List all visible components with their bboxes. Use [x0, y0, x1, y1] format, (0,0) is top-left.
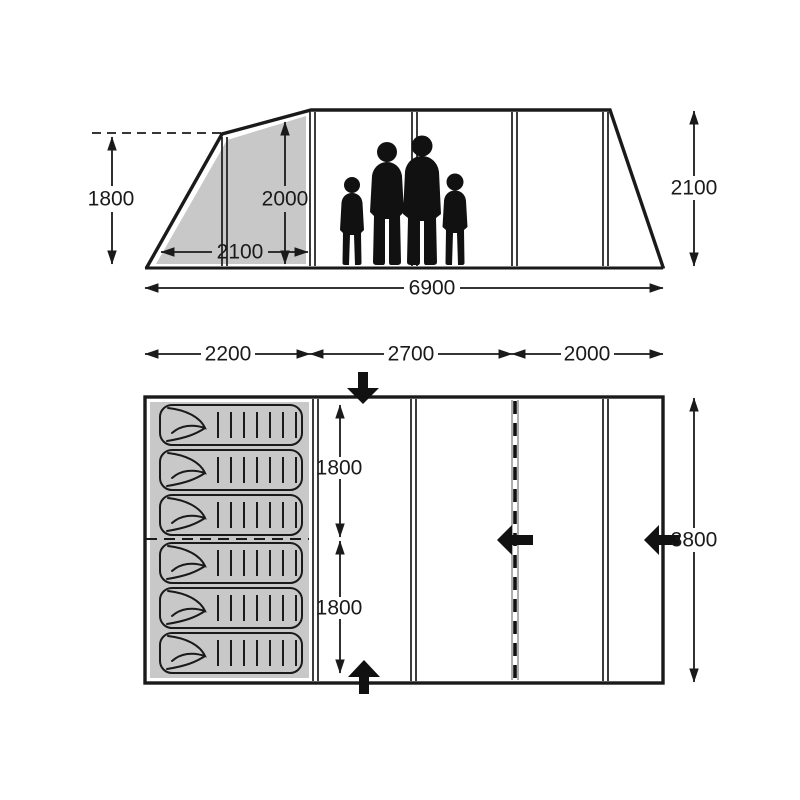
sleeping-bag	[160, 450, 302, 490]
dim-label-3800: 3800	[671, 529, 718, 552]
dim-label-6900: 6900	[409, 277, 456, 300]
dim-label-2000-plan: 2000	[564, 343, 611, 366]
family-silhouettes	[340, 136, 468, 266]
sleeping-bag	[160, 633, 302, 673]
dim-label-2700: 2700	[388, 343, 435, 366]
dim-main-height: 2100	[671, 111, 718, 266]
boy-silhouette	[443, 174, 468, 266]
side-elevation-view: 1800 2000 2100 6900 2100	[88, 110, 718, 300]
tent-diagram-svg: 1800 2000 2100 6900 2100	[0, 0, 800, 800]
sleeping-bag	[160, 543, 302, 583]
dim-living-length: 2700	[310, 343, 512, 366]
girl-silhouette	[340, 177, 364, 265]
dim-label-2100-right: 2100	[671, 177, 718, 200]
dim-label-1800-bottom: 1800	[316, 597, 363, 620]
sleeping-bag	[160, 495, 302, 535]
man-silhouette	[403, 136, 441, 266]
sleeping-bag	[160, 405, 302, 445]
woman-silhouette	[370, 142, 404, 265]
dim-porch-peak-height: 1800	[88, 137, 135, 264]
dim-bedroom-length: 2200	[145, 343, 310, 366]
dim-total-width: 3800	[671, 398, 718, 682]
dim-label-2200: 2200	[205, 343, 252, 366]
dim-front-length: 2000	[512, 343, 663, 366]
dim-label-2000: 2000	[262, 188, 309, 211]
dim-total-length: 6900	[145, 277, 663, 300]
dim-label-2100-porch: 2100	[217, 241, 264, 264]
dim-label-1800-side: 1800	[88, 188, 135, 211]
dim-label-1800-top: 1800	[316, 457, 363, 480]
floor-plan-view: 2200 2700 2000 1800 1800	[145, 343, 717, 695]
sleeping-bag	[160, 588, 302, 628]
tent-dimensions-page: 1800 2000 2100 6900 2100	[0, 0, 800, 800]
